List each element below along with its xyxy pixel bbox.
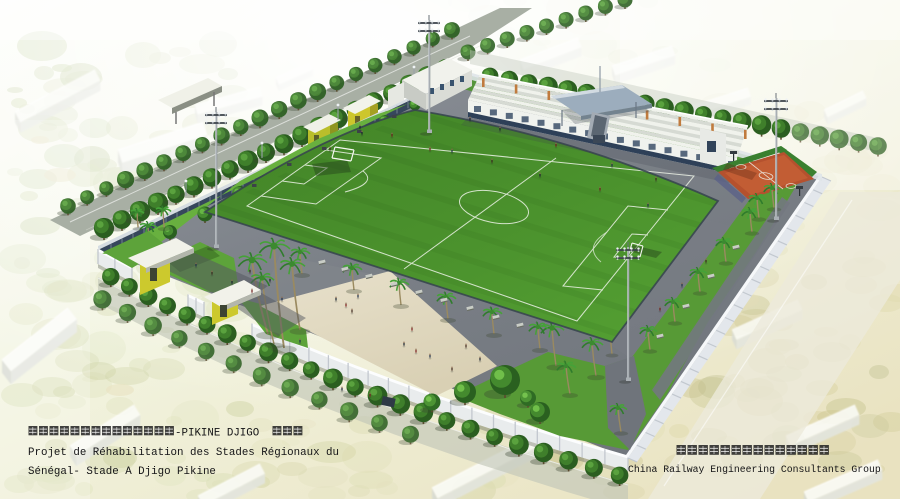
svg-text:China Railway Engineering Cons: China Railway Engineering Consultants Gr… bbox=[628, 464, 881, 475]
svg-text:-PIKINE DJIGO: -PIKINE DJIGO bbox=[175, 428, 259, 440]
svg-text:Sénégal- Stade A Djigo Pikine: Sénégal- Stade A Djigo Pikine bbox=[28, 466, 216, 478]
svg-text:Projet de Réhabilitation des S: Projet de Réhabilitation des Stades Régi… bbox=[28, 447, 339, 459]
